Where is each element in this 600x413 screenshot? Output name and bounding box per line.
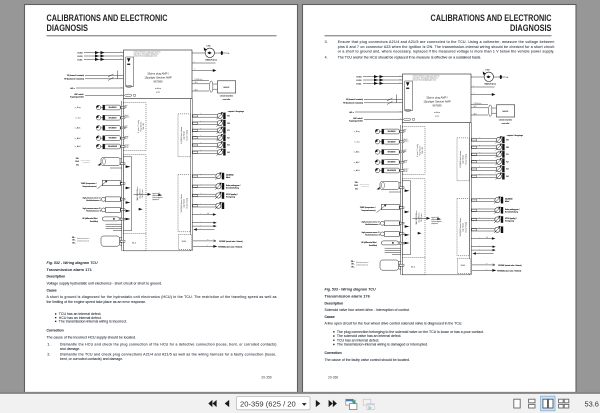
svg-text:Dismantle the HCU and check th: Dismantle the HCU and check the plug con… bbox=[60, 343, 277, 347]
svg-text:Description: Description bbox=[325, 301, 344, 305]
svg-text:Transmission alarm 171: Transmission alarm 171 bbox=[47, 267, 93, 272]
svg-text:Fig. 533 - Wiring diagram TCU: Fig. 533 - Wiring diagram TCU bbox=[325, 287, 376, 291]
svg-text:3.: 3. bbox=[325, 40, 328, 44]
svg-text:20-359 (625 / 20: 20-359 (625 / 20 bbox=[240, 400, 296, 409]
svg-text:The cause of the faulty valve: The cause of the faulty valve control sh… bbox=[325, 358, 410, 362]
svg-text:Correction: Correction bbox=[47, 329, 64, 333]
svg-text:Cause: Cause bbox=[47, 288, 57, 292]
svg-text:53.6: 53.6 bbox=[585, 399, 599, 408]
svg-text:A short to ground is diagnosed: A short to ground is diagnosed for the h… bbox=[47, 295, 277, 299]
svg-text:CALIBRATIONS AND ELECTRONIC: CALIBRATIONS AND ELECTRONIC bbox=[47, 13, 169, 23]
svg-text:CALIBRATIONS AND ELECTRONIC: CALIBRATIONS AND ELECTRONIC bbox=[431, 13, 553, 23]
svg-text:4.: 4. bbox=[325, 56, 328, 60]
svg-text:The transmission-internal wiri: The transmission-internal wiring is inco… bbox=[59, 320, 127, 324]
svg-text:Voltage supply hydrostatic uni: Voltage supply hydrostatic unit electron… bbox=[47, 281, 163, 285]
svg-text:pins 6 and 7 on connector A23: pins 6 and 7 on connector A23 when the i… bbox=[338, 45, 555, 49]
svg-text:Description: Description bbox=[47, 275, 66, 279]
svg-text:Solenoid valve four wheel driv: Solenoid valve four wheel drive - interr… bbox=[325, 308, 410, 312]
svg-text:Ensure that plug connectors A2: Ensure that plug connectors A21/4 and A2… bbox=[338, 40, 555, 44]
svg-text:or a short to ground and, wher: or a short to ground and, where necessar… bbox=[338, 50, 555, 54]
svg-text:2.: 2. bbox=[47, 352, 50, 356]
svg-text:The TCU and/or the HCU should: The TCU and/or the HCU should be replace… bbox=[338, 56, 481, 60]
svg-text:The transmission-internal wiri: The transmission-internal wiring is dama… bbox=[337, 343, 428, 347]
svg-text:Cause: Cause bbox=[325, 315, 335, 319]
svg-text:Correction: Correction bbox=[325, 351, 342, 355]
svg-text:20-360: 20-360 bbox=[328, 376, 338, 380]
svg-text:and damage.: and damage. bbox=[60, 347, 80, 351]
svg-text:DIAGNOSIS: DIAGNOSIS bbox=[47, 23, 89, 33]
svg-text:20-359: 20-359 bbox=[261, 376, 271, 380]
svg-text:The cause of the incorrect HCU: The cause of the incorrect HCU supply sh… bbox=[47, 336, 137, 340]
svg-text:Dismantle the TCU and check pl: Dismantle the TCU and check plug connect… bbox=[60, 352, 277, 356]
svg-text:A line open circuit for the fo: A line open circuit for the four wheel d… bbox=[325, 322, 463, 326]
svg-text:Transmission alarm 176: Transmission alarm 176 bbox=[325, 294, 371, 299]
svg-text:1.: 1. bbox=[47, 343, 50, 347]
svg-text:DIAGNOSIS: DIAGNOSIS bbox=[510, 23, 552, 33]
svg-text:Fig. 532 - Wiring diagram TCU: Fig. 532 - Wiring diagram TCU bbox=[47, 261, 98, 265]
svg-text:the limiting of the engine spe: the limiting of the engine speed take pl… bbox=[47, 300, 147, 304]
svg-text:bent, or corroded contacts) an: bent, or corroded contacts) and damage. bbox=[60, 357, 123, 361]
